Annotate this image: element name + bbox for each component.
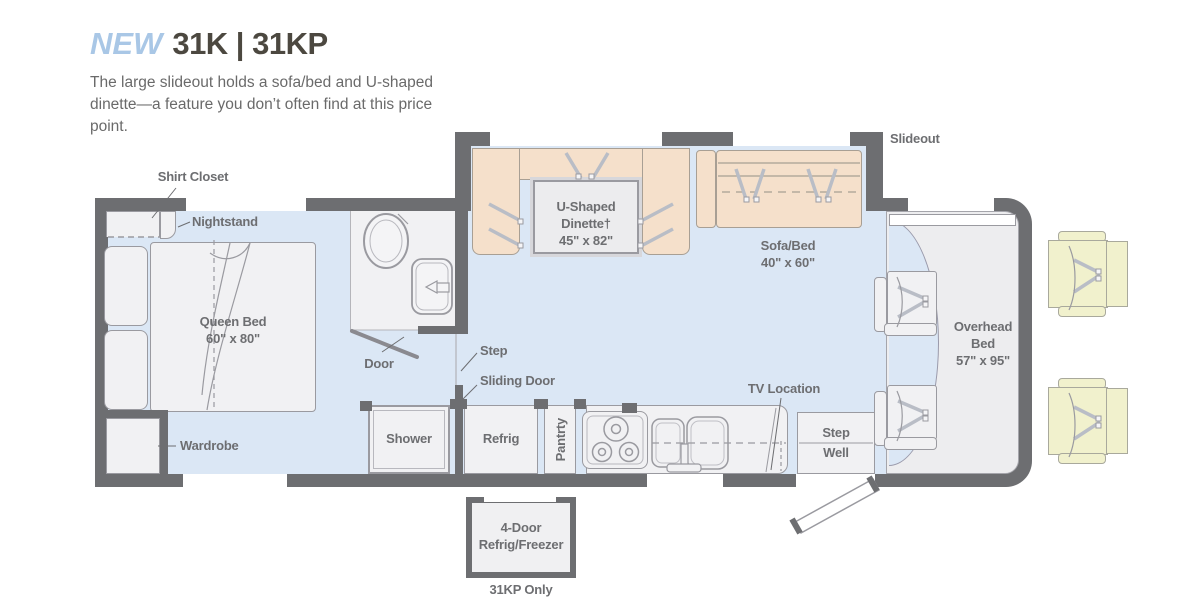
swivel-chair-2-seat bbox=[1048, 387, 1108, 455]
driver-seat bbox=[887, 271, 937, 326]
entry-door-opening bbox=[796, 474, 875, 487]
bed-pillow-top bbox=[104, 246, 148, 326]
four-door-fridge-label-2: Refrig/Freezer bbox=[479, 538, 564, 552]
stepwell-label-2: Well bbox=[823, 446, 849, 460]
overhead-bed-label-2: Bed bbox=[971, 337, 995, 351]
sliding-door-label: Sliding Door bbox=[480, 374, 555, 388]
cab-dash bbox=[889, 214, 1016, 226]
stove bbox=[582, 411, 648, 469]
pantry: Pantrty bbox=[544, 405, 576, 474]
sofa-size: 40" x 60" bbox=[761, 256, 815, 270]
wall-stub-5 bbox=[622, 403, 637, 413]
queen-bed-size: 60" x 80" bbox=[206, 332, 260, 346]
wall-stub-4 bbox=[574, 399, 586, 409]
bedroom-window bbox=[186, 198, 306, 211]
pantry-label: Pantrty bbox=[553, 418, 568, 461]
slideout-wall-right bbox=[866, 132, 883, 211]
dinette-label-1: U-Shaped bbox=[556, 200, 615, 214]
wardrobe bbox=[106, 418, 160, 474]
wardrobe-wall-right bbox=[160, 410, 168, 474]
page-title: NEW31K | 31KP bbox=[90, 26, 328, 62]
sofa-bed bbox=[716, 150, 862, 228]
four-door-fridge-gap bbox=[484, 497, 556, 502]
refrig-label: Refrig bbox=[483, 432, 519, 446]
queen-bed-label: Queen Bed bbox=[200, 315, 267, 329]
wardrobe-wall-top bbox=[108, 410, 168, 418]
tv-location-label: TV Location bbox=[748, 382, 820, 396]
swivel-chair-2-side bbox=[1106, 388, 1128, 454]
dinette-size: 45" x 82" bbox=[559, 234, 613, 248]
cab-window bbox=[908, 198, 994, 211]
bath-wall-bottom bbox=[418, 326, 468, 334]
bed-pillow-bottom bbox=[104, 330, 148, 410]
kitchen-bottom-window bbox=[647, 474, 723, 487]
nightstand-label: Nightstand bbox=[192, 215, 258, 229]
wall-stub-2 bbox=[450, 399, 467, 409]
driver-seat-arm bbox=[884, 323, 937, 336]
overhead-bed-label-1: Overhead bbox=[954, 320, 1012, 334]
four-door-fridge-label-1: 4-Door bbox=[501, 521, 542, 535]
sofa-label: Sofa/Bed bbox=[761, 239, 816, 253]
wall-stub-3 bbox=[534, 399, 548, 409]
stepwell-label-1: Step bbox=[822, 426, 849, 440]
bath-door-label: Door bbox=[364, 357, 394, 371]
dinette-label-2: Dinette† bbox=[561, 217, 611, 231]
shirt-closet bbox=[106, 211, 160, 237]
step-label: Step bbox=[480, 344, 507, 358]
slideout-window-2 bbox=[733, 132, 850, 146]
floorplan-page: NEW31K | 31KP The large slideout holds a… bbox=[0, 0, 1179, 616]
sofa-arm bbox=[696, 150, 716, 228]
dinette-bench-right bbox=[642, 148, 690, 255]
slideout-label: Slideout bbox=[890, 132, 940, 146]
step-well bbox=[797, 412, 875, 474]
passenger-seat bbox=[887, 385, 937, 440]
shirt-closet-label: Shirt Closet bbox=[158, 170, 229, 184]
wardrobe-label: Wardrobe bbox=[180, 439, 239, 453]
passenger-seat-arm bbox=[884, 437, 937, 450]
swivel-chair-1-seat bbox=[1048, 240, 1108, 308]
bath-wall-right bbox=[455, 211, 468, 333]
slideout-window-1 bbox=[490, 132, 662, 146]
bathroom-floor bbox=[350, 211, 455, 330]
swivel-chair-1-side bbox=[1106, 241, 1128, 307]
shower-label: Shower bbox=[386, 432, 432, 446]
dinette-bench-left bbox=[472, 148, 520, 255]
bedroom-bottom-window bbox=[183, 474, 287, 487]
model-name: 31K | 31KP bbox=[172, 26, 327, 61]
kp-only-note: 31KP Only bbox=[490, 583, 553, 597]
new-badge: NEW bbox=[90, 26, 162, 61]
description-text: The large slideout holds a sofa/bed and … bbox=[90, 72, 442, 138]
swivel-chair-2-footrest bbox=[1058, 453, 1106, 464]
overhead-bed-size: 57" x 95" bbox=[956, 354, 1010, 368]
slideout-wall-left bbox=[455, 132, 472, 211]
swivel-chair-1-footrest bbox=[1058, 306, 1106, 317]
wall-stub-1 bbox=[360, 401, 372, 411]
nightstand bbox=[160, 211, 176, 239]
